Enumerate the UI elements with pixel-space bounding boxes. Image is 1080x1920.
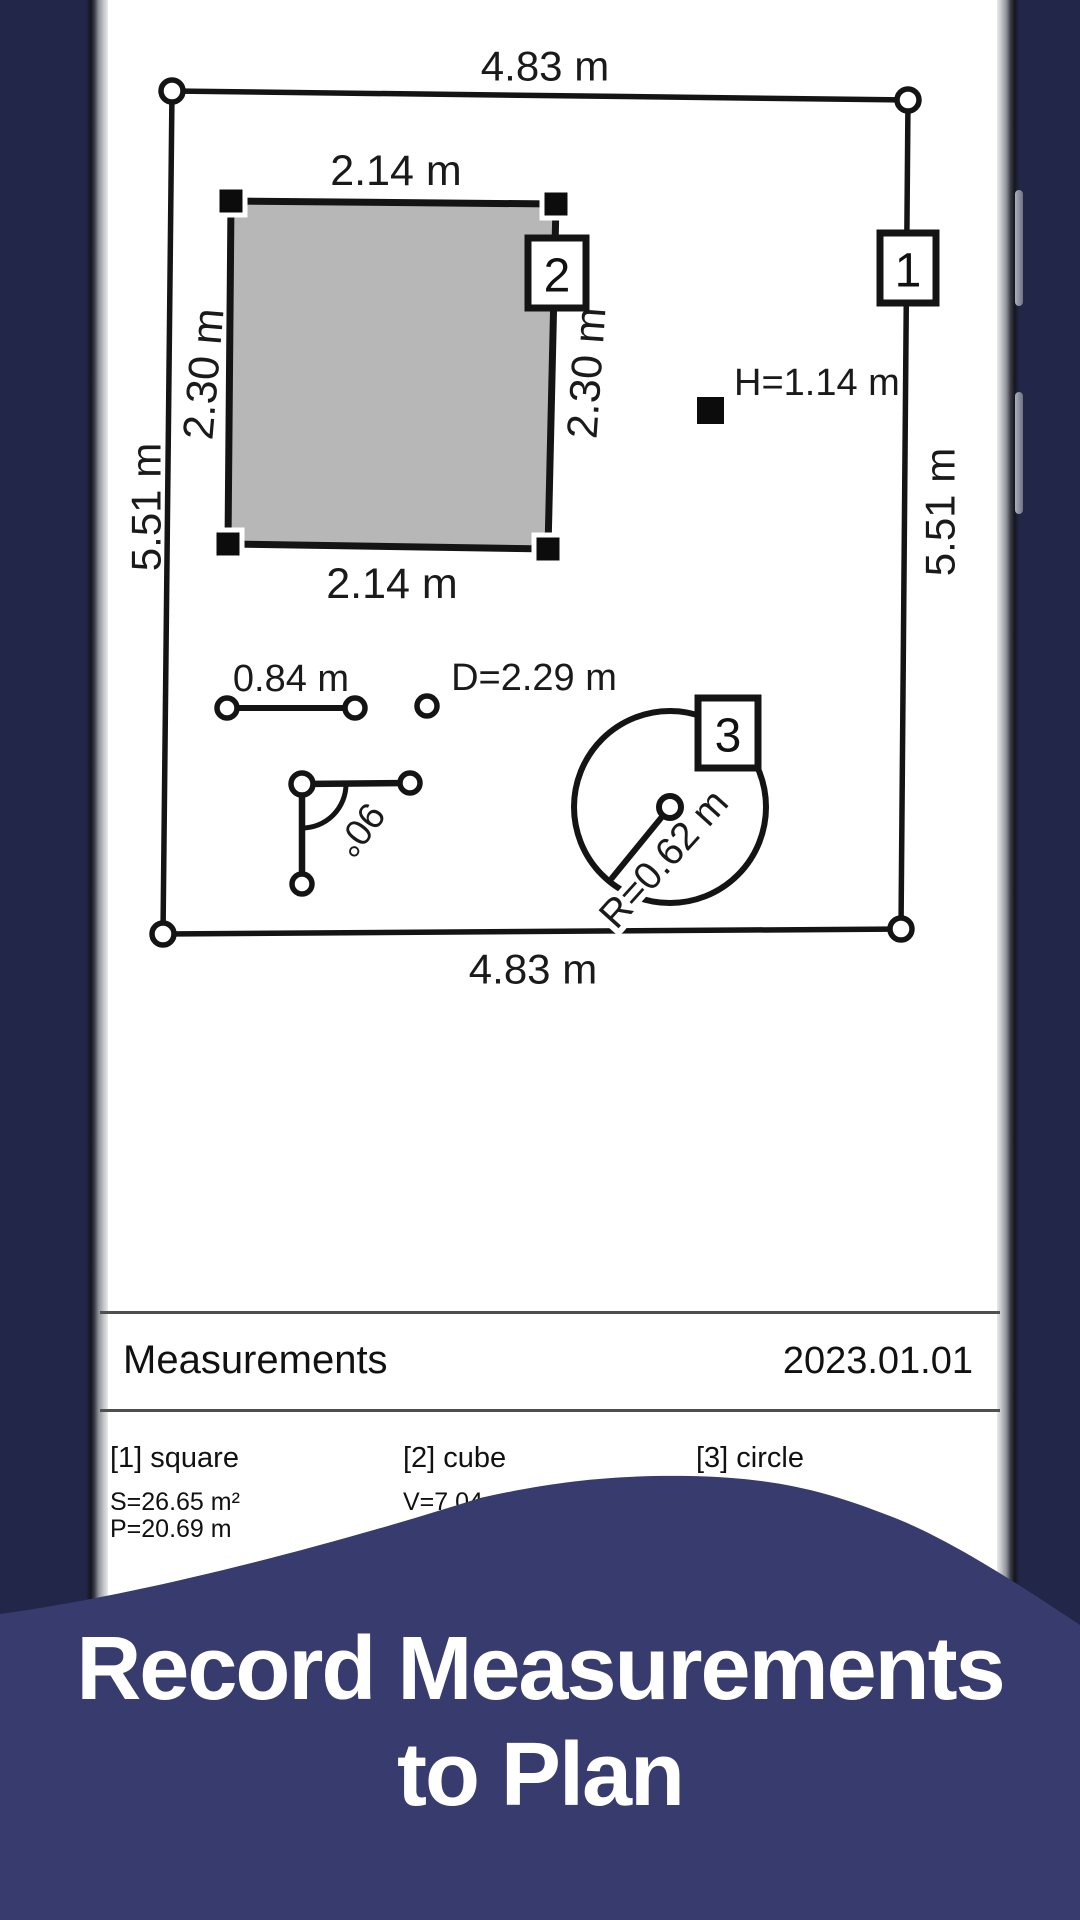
caption-line1: Record Measurements — [0, 1616, 1080, 1722]
caption: Record Measurements to Plan — [0, 1616, 1080, 1828]
caption-line2: to Plan — [0, 1722, 1080, 1828]
marketing-screenshot: 4.83 m 4.83 m 5.51 m 5.51 m 1 2.14 m 2.1… — [0, 0, 1080, 1920]
